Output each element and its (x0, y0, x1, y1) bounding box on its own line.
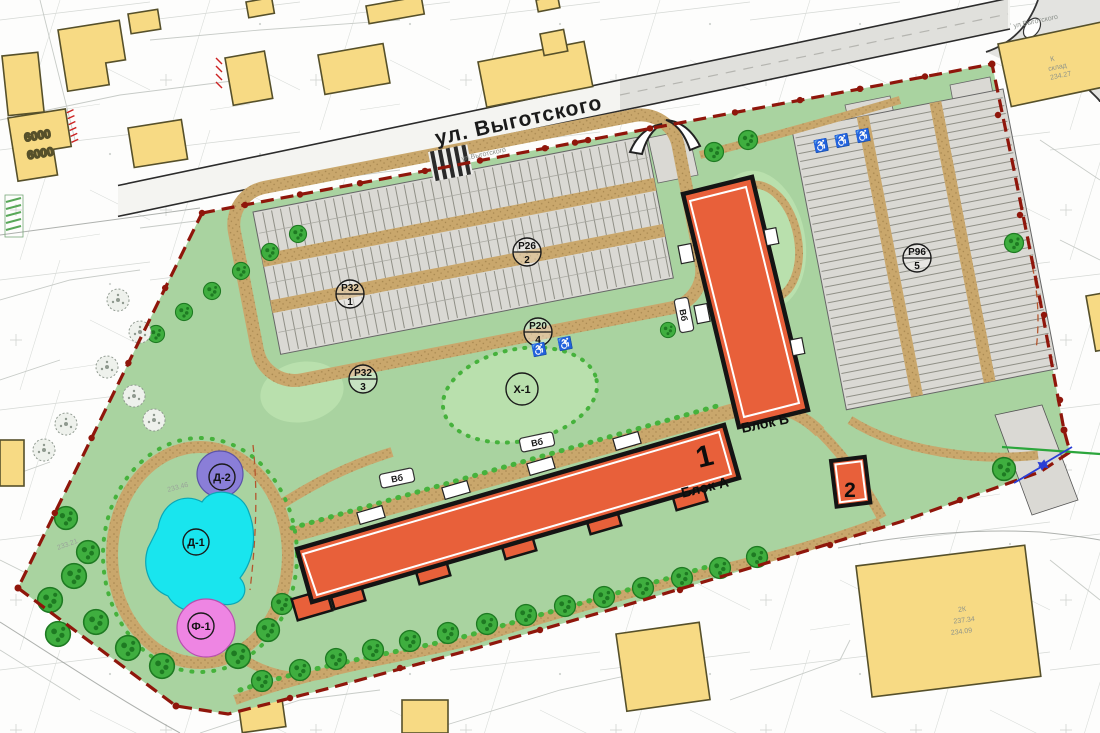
disabled-parking-icon: ♿ (813, 138, 830, 155)
utility-area-label: Х-1 (513, 384, 530, 396)
parking-label-p20-4: Р20 4 (524, 318, 552, 346)
disabled-parking-icon: ♿ (834, 133, 851, 150)
disabled-parking-icon: ♿ (531, 342, 548, 359)
site-plan: 6000 6000 К склад 234.27 2К 237.34 234.0… (0, 0, 1100, 733)
parking-code: Р32 (354, 368, 372, 379)
site-plan-canvas: 6000 6000 К склад 234.27 2К 237.34 234.0… (0, 0, 1100, 733)
substation-number: 2 (844, 479, 856, 502)
parking-label-p32-1: Р32 1 (336, 280, 364, 308)
parking-code: Р20 (529, 321, 547, 332)
parking-index: 3 (360, 382, 366, 393)
playground-f1-label: Ф-1 (191, 621, 210, 633)
building-2k: 2К 237.34 234.09 (856, 545, 1041, 697)
parking-code: Р96 (908, 247, 926, 258)
parking-index: 2 (524, 255, 530, 266)
playground-d1-label: Д-1 (187, 537, 205, 549)
parking-code: Р32 (341, 283, 359, 294)
parking-index: 5 (914, 261, 920, 272)
parking-code: Р26 (518, 241, 536, 252)
playground-d2-label: Д-2 (213, 472, 231, 484)
parking-label-p96-5: Р96 5 (903, 244, 931, 272)
disabled-parking-icon: ♿ (557, 336, 574, 353)
disabled-parking-icon: ♿ (855, 128, 872, 145)
parking-label-p32-3: Р32 3 (349, 365, 377, 393)
parking-index: 1 (347, 297, 353, 308)
parking-label-p26-2: Р26 2 (513, 238, 541, 266)
